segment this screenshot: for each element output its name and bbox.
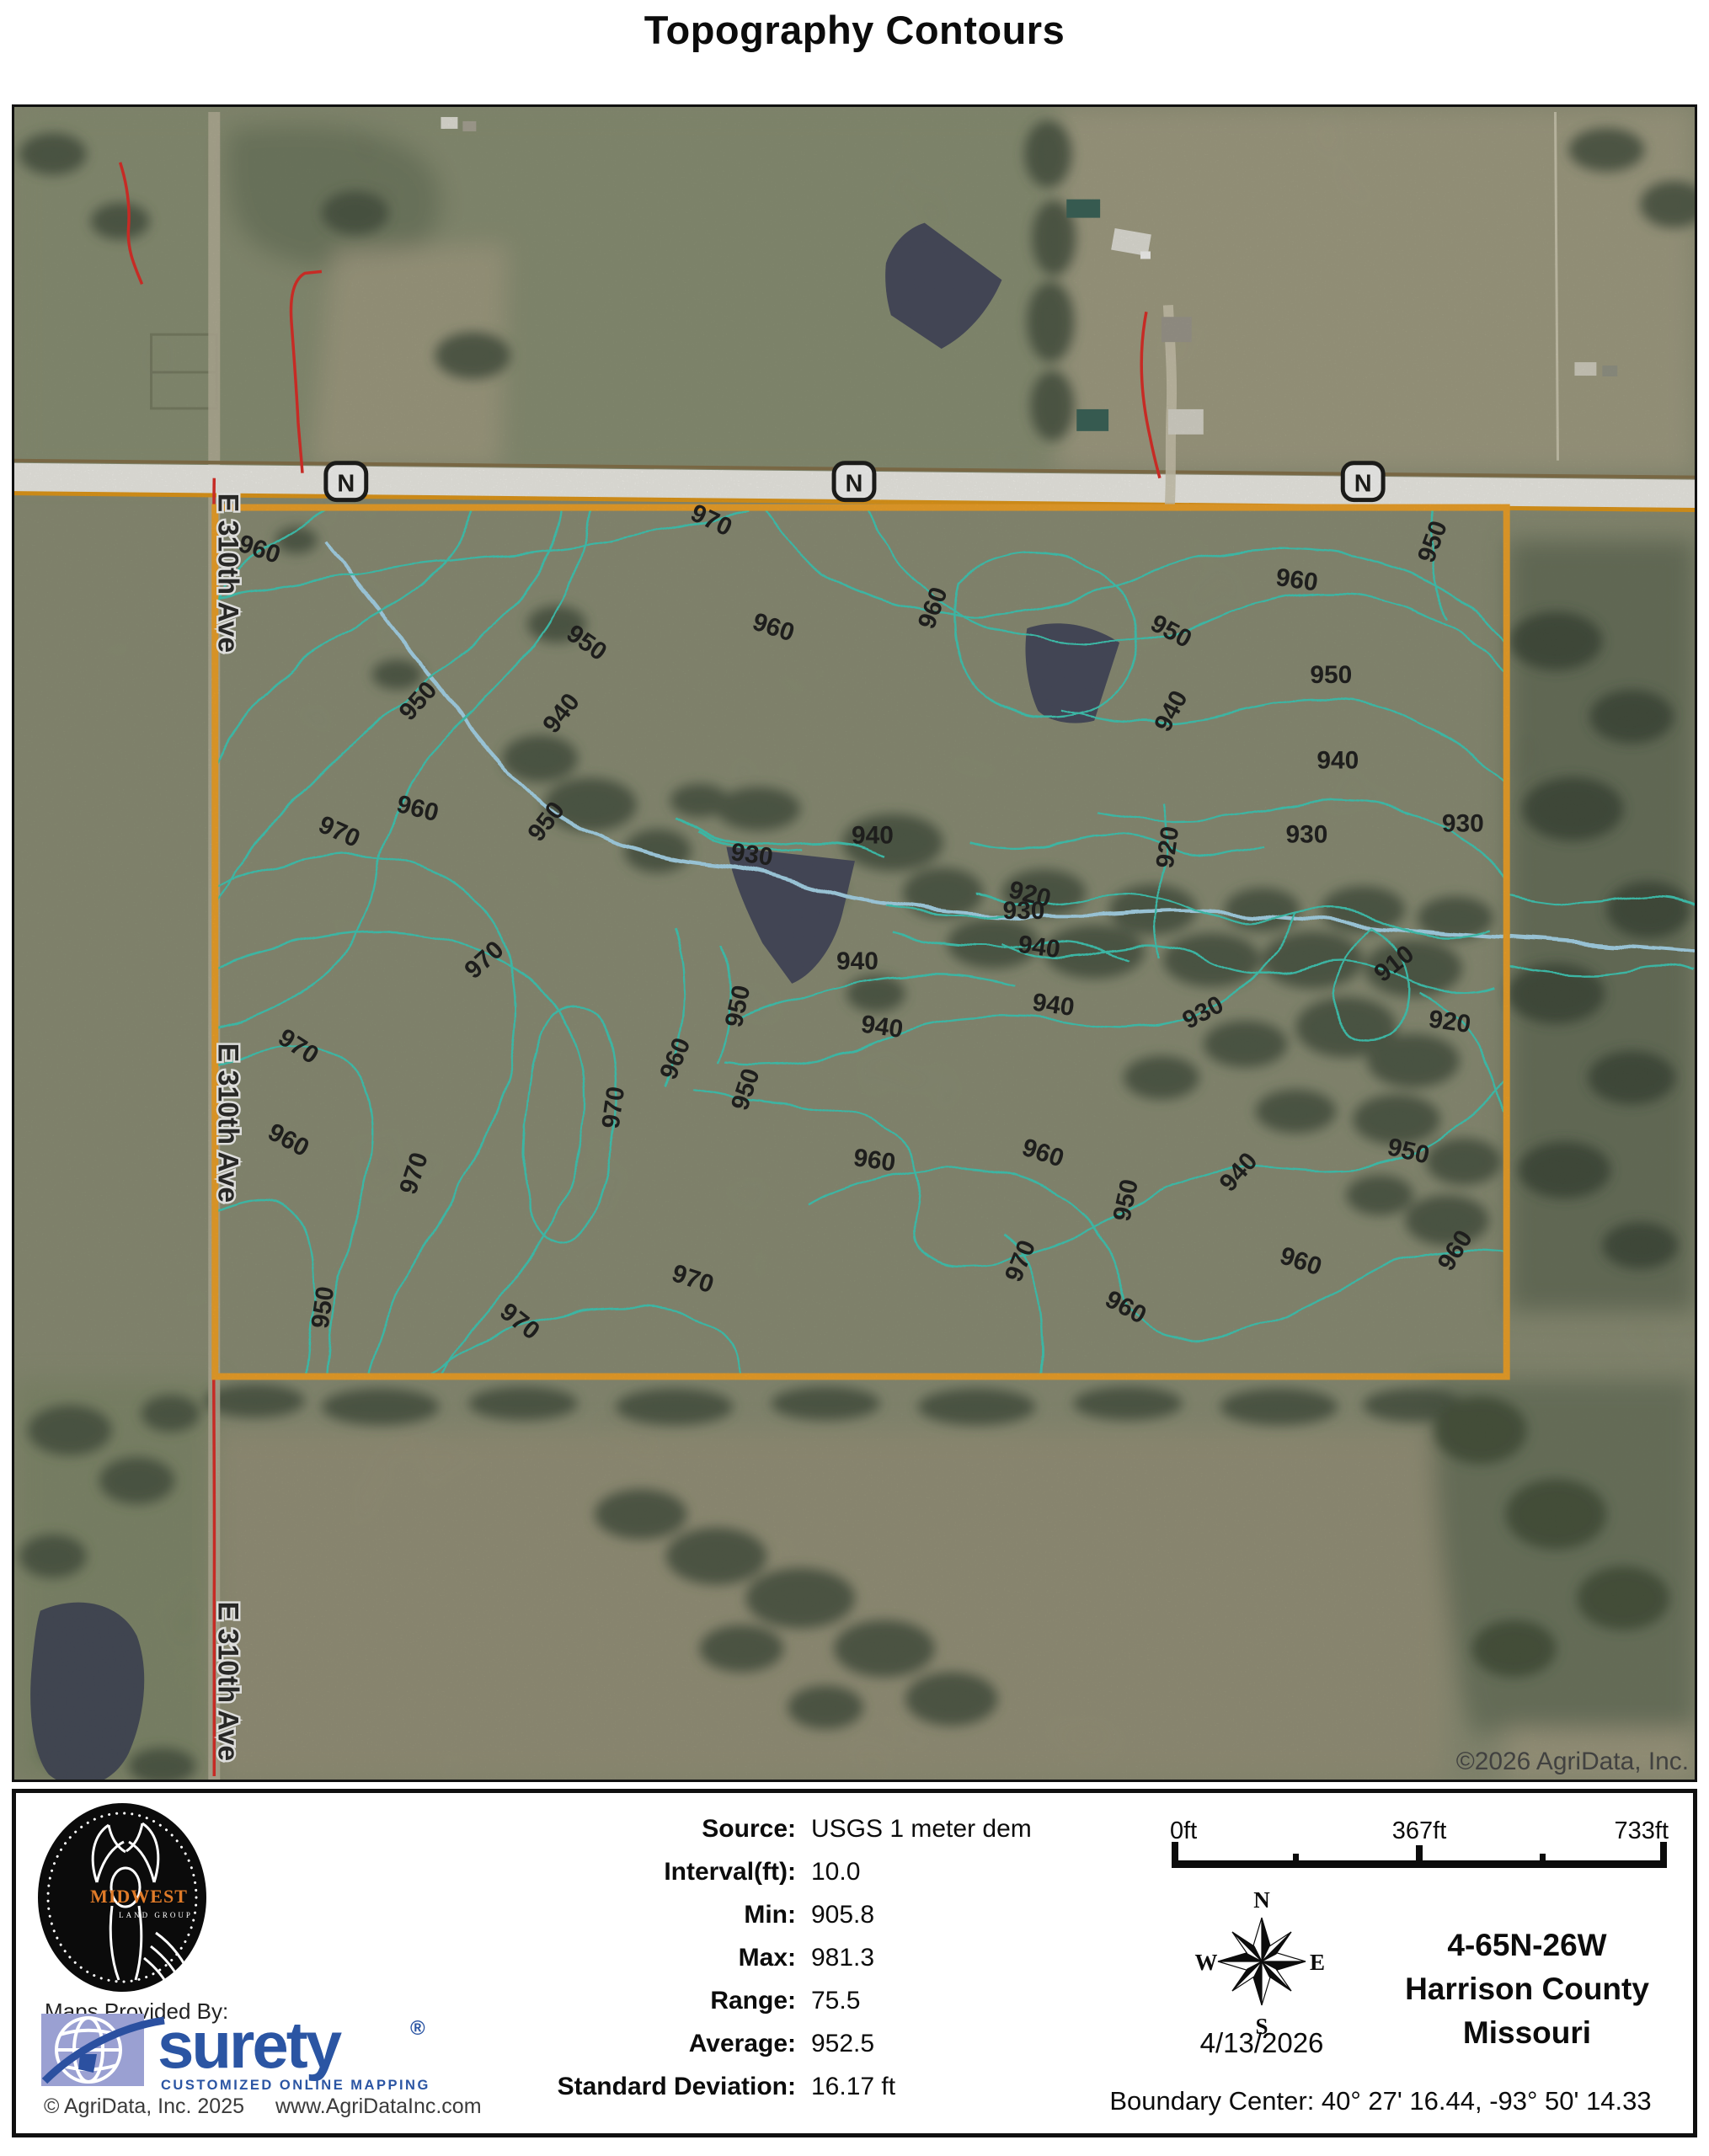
road-label: E 310th Ave	[211, 494, 243, 654]
scale-end: 733ft	[1615, 1817, 1669, 1844]
stat-row: Standard Deviation:16.17 ft	[278, 2073, 1120, 2116]
contour-label: 940	[1031, 989, 1076, 1022]
contour-label: 930	[1285, 820, 1327, 848]
map-canvas: NNN E 310th AveE 310th AveE 310th Ave 97…	[14, 107, 1695, 1780]
contour-label: 920	[1151, 825, 1185, 870]
page-title: Topography Contours	[0, 7, 1709, 53]
contour-label: 970	[597, 1085, 631, 1130]
county-name: Harrison County	[1321, 1972, 1709, 2007]
road-label: E 310th Ave	[211, 1602, 243, 1762]
highway-shield: N	[326, 463, 366, 500]
stat-label: Standard Deviation:	[278, 2073, 796, 2101]
land-group-wordmark: LAND GROUP	[119, 1911, 193, 1919]
contour-label: 950	[307, 1284, 340, 1330]
contour-label: 940	[836, 947, 879, 975]
map-date: 4/13/2026	[1194, 2027, 1329, 2059]
contour-label: 960	[1274, 563, 1320, 597]
scale-bar: 0ft 367ft 733ft	[1167, 1817, 1689, 1876]
stat-value: USGS 1 meter dem	[811, 1815, 1032, 1844]
contour-label: 940	[859, 1010, 905, 1043]
contour-label: 940	[1316, 747, 1359, 775]
contour-label: 930	[1442, 809, 1484, 837]
scale-0: 0ft	[1170, 1817, 1197, 1844]
stat-label: Min:	[278, 1901, 796, 1929]
midwest-wordmark: MIDWEST	[90, 1886, 188, 1907]
state-name: Missouri	[1321, 2015, 1709, 2051]
township-range-section: 4-65N-26W	[1321, 1928, 1709, 1963]
svg-text:N: N	[846, 471, 863, 498]
stat-row: Source:USGS 1 meter dem	[278, 1815, 1120, 1858]
stat-value: 10.0	[811, 1858, 860, 1886]
compass-rose-icon: N S W E	[1194, 1884, 1329, 2041]
midwest-land-group-logo: MIDWEST LAND GROUP	[31, 1798, 216, 1997]
stat-value: 952.5	[811, 2030, 874, 2058]
stat-label: Average:	[278, 2030, 796, 2058]
scale-mid: 367ft	[1392, 1817, 1447, 1844]
svg-text:W: W	[1195, 1950, 1218, 1975]
stat-row: Range:75.5	[278, 1987, 1120, 2030]
stat-label: Source:	[278, 1815, 796, 1844]
stat-label: Interval(ft):	[278, 1858, 796, 1886]
aerial-mottle	[14, 107, 1695, 1780]
svg-text:N: N	[1253, 1887, 1270, 1913]
contour-label: 940	[852, 821, 894, 849]
pond-southwest	[30, 1603, 144, 1780]
contour-label: 930	[1002, 897, 1044, 925]
highway-shield: N	[834, 463, 874, 500]
stat-label: Max:	[278, 1944, 796, 1972]
stat-label: Range:	[278, 1987, 796, 2015]
boundary-center-coordinates: Boundary Center: 40° 27' 16.44, -93° 50'…	[1052, 2086, 1709, 2116]
contour-label: 950	[1310, 661, 1352, 689]
stat-row: Max:981.3	[278, 1944, 1120, 1987]
agridata-copyright: © AgriData, Inc. 2025	[44, 2095, 244, 2119]
topography-map: NNN E 310th AveE 310th AveE 310th Ave 97…	[12, 104, 1697, 1782]
stat-value: 16.17 ft	[811, 2073, 895, 2101]
stat-value: 75.5	[811, 1987, 860, 2015]
stat-row: Min:905.8	[278, 1901, 1120, 1944]
contour-label: 930	[729, 838, 775, 872]
road-label: E 310th Ave	[211, 1043, 243, 1203]
svg-text:N: N	[1354, 471, 1372, 498]
stat-row: Interval(ft):10.0	[278, 1858, 1120, 1901]
map-copyright: ©2026 AgriData, Inc.	[1456, 1748, 1689, 1775]
stat-value: 981.3	[811, 1944, 874, 1972]
contour-label: 920	[1427, 1005, 1472, 1038]
svg-text:N: N	[337, 471, 355, 498]
stat-row: Average:952.5	[278, 2030, 1120, 2073]
info-panel: MIDWEST LAND GROUP Maps Provided By: sur…	[12, 1789, 1697, 2137]
contour-label: 960	[852, 1144, 897, 1177]
highway-shield: N	[1343, 463, 1383, 500]
elevation-stats: Source:USGS 1 meter demInterval(ft):10.0…	[278, 1815, 1120, 2116]
contour-label: 940	[1017, 931, 1062, 964]
surety-globe-icon	[41, 2014, 168, 2089]
stat-value: 905.8	[811, 1901, 874, 1929]
